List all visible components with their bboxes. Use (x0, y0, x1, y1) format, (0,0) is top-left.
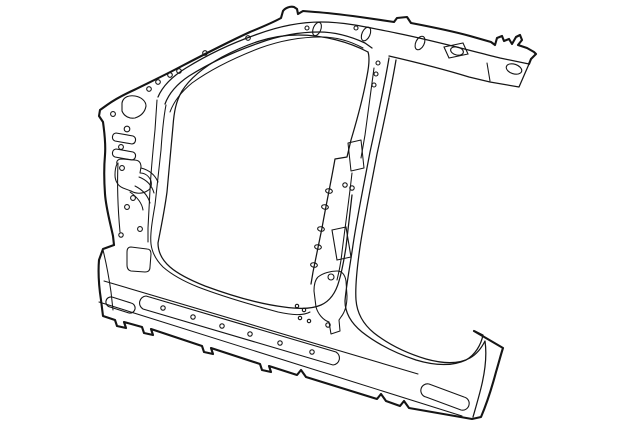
rail-hole-small-2 (354, 26, 358, 30)
rocker-bottom-edge (99, 245, 503, 419)
front-door-aperture (151, 35, 368, 315)
b-pillar-hole-pair-1 (343, 183, 347, 187)
pillar-hole-6 (138, 227, 143, 232)
rocker-slot-rear (421, 384, 469, 410)
part-diagram-page (0, 0, 640, 440)
hinge-pillar (103, 96, 158, 310)
rocker-top-hem-line (104, 281, 418, 374)
rail-hole-small-1 (305, 26, 309, 30)
rocker-panel (99, 281, 469, 416)
lower-hinge-recess (127, 247, 151, 272)
upper-hinge-bracket (115, 159, 151, 193)
rocker-lower-hem-line (99, 302, 462, 416)
rail-end-oval (505, 62, 523, 76)
rail-slot-1 (311, 21, 323, 37)
b-pillar-rear-flange (356, 60, 486, 417)
rail-weld-holes (147, 36, 251, 92)
pillar-hole-7 (119, 233, 123, 237)
rail-step-line (487, 63, 490, 81)
hinge-pillar-face-left-line (118, 163, 120, 232)
rail-oval-in-rect (450, 46, 465, 57)
front-hem-line (103, 250, 113, 310)
rocker-weld-holes (161, 306, 314, 354)
striker-hole (328, 274, 334, 280)
pillar-slot-2 (112, 149, 135, 160)
pillar-slot-1 (112, 133, 135, 144)
hinge-bolt-hole (120, 166, 125, 171)
mirror-pad-hole (122, 96, 146, 118)
body-side-aperture-diagram (0, 0, 640, 440)
pillar-hole-1 (111, 112, 116, 117)
aperture-flange-top (170, 37, 363, 112)
pillar-hole-4 (131, 196, 136, 201)
hinge-gusset-ribs (130, 168, 158, 210)
pillar-hole-3 (119, 145, 124, 150)
rail-mid-line (158, 22, 529, 97)
pillar-base-weld-dots (295, 304, 310, 322)
roof-side-rail (147, 21, 529, 104)
pillar-hole-5 (125, 205, 130, 210)
rocker-slot-long (140, 296, 340, 365)
aperture-flange-left-bottom (151, 105, 310, 315)
pillar-hole-2 (124, 126, 130, 132)
rail-inner-line (165, 32, 372, 104)
